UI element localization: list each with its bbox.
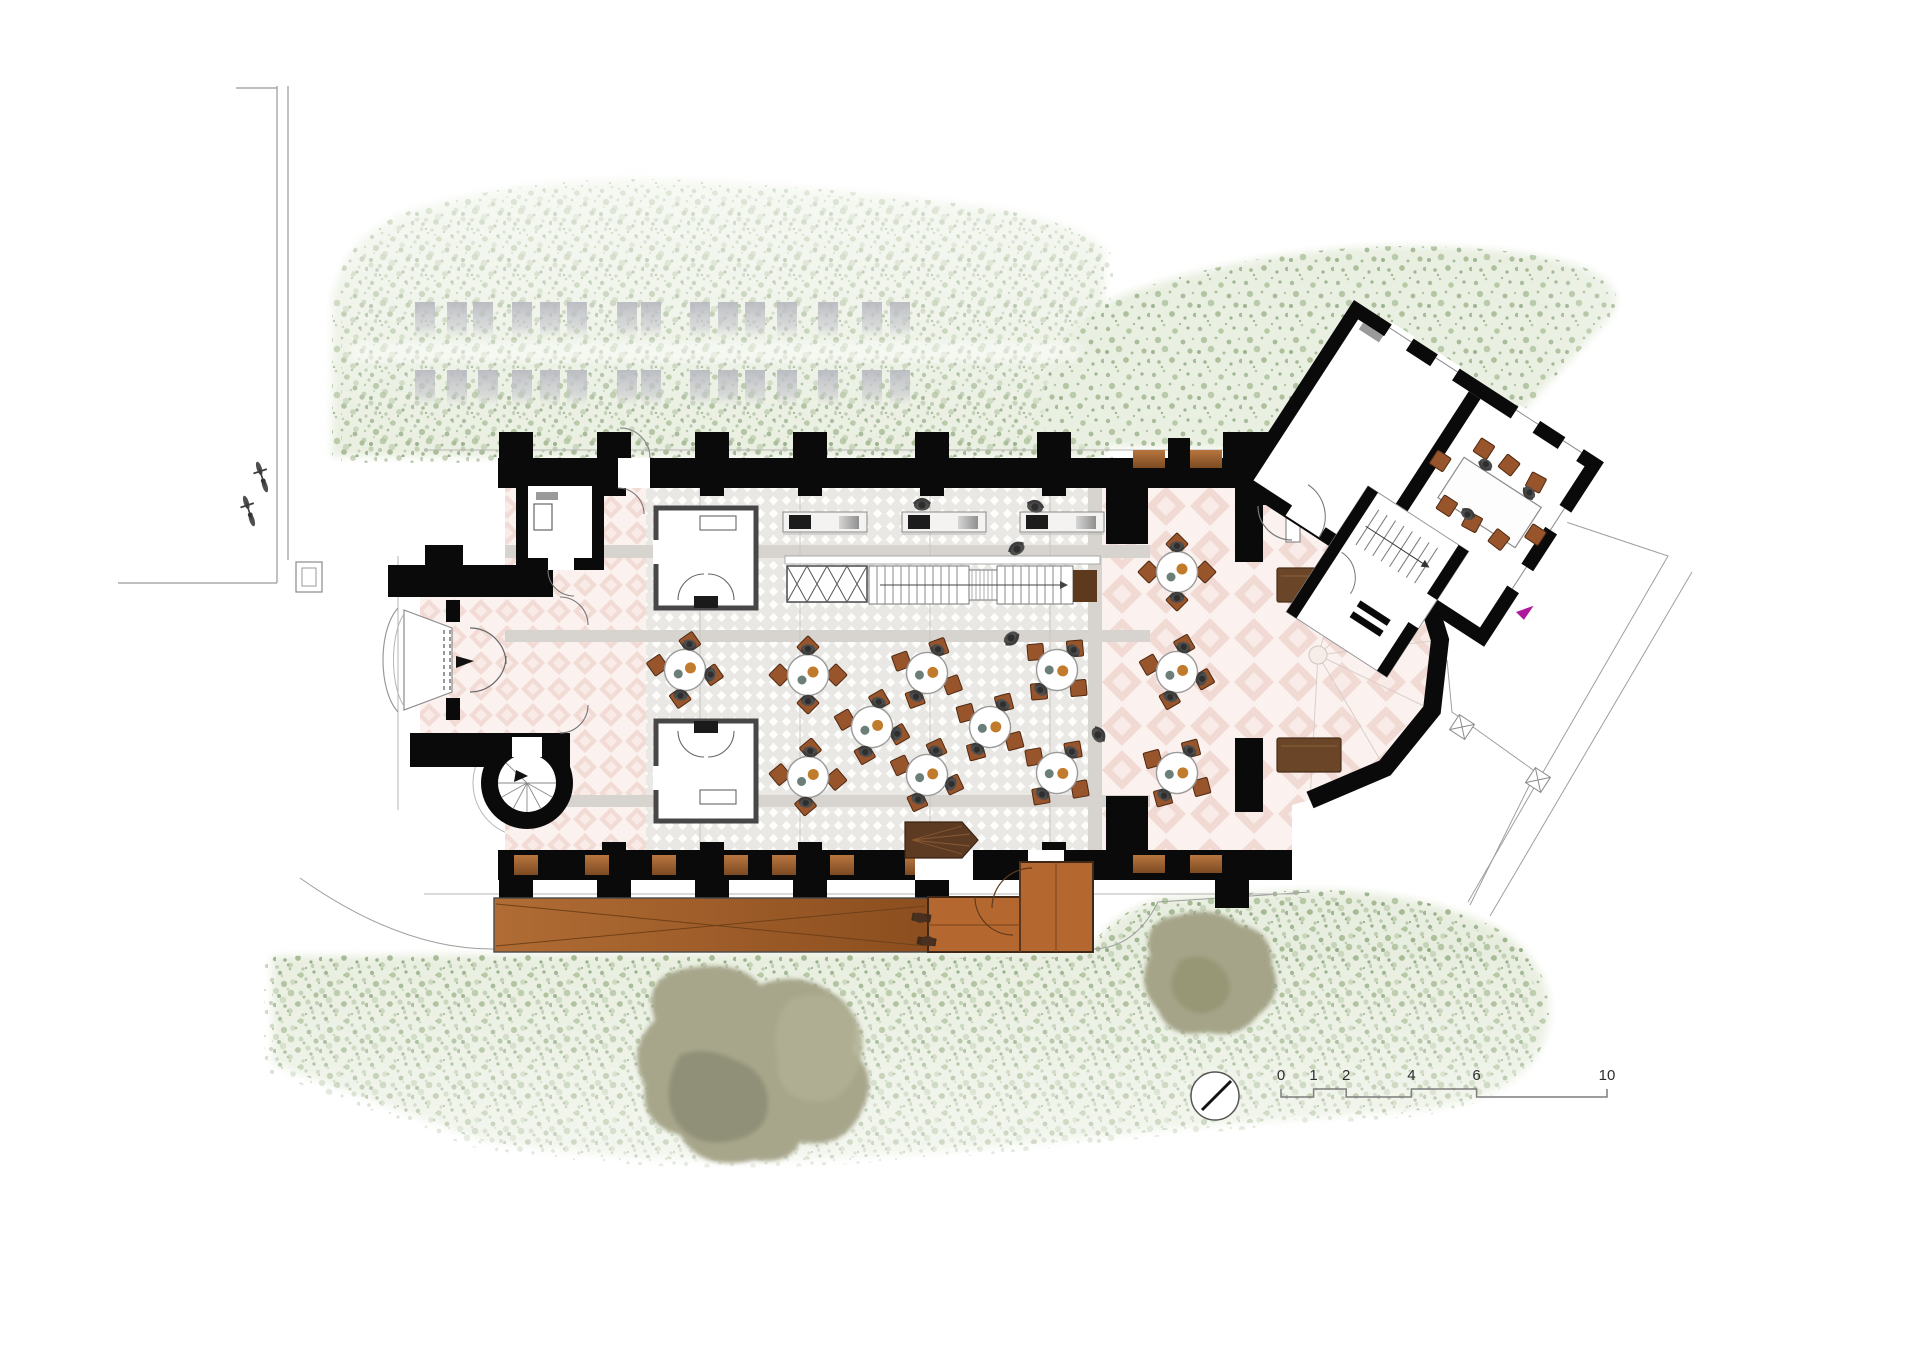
counter-bench xyxy=(783,512,867,534)
gravestone xyxy=(641,302,661,338)
scale-label-6: 6 xyxy=(1472,1067,1480,1084)
gravestone xyxy=(690,302,710,338)
gravestone xyxy=(478,370,498,406)
cubicle-pod-south xyxy=(653,721,756,821)
gravestone xyxy=(641,370,661,406)
seated-person xyxy=(801,644,815,654)
scale-label-0: 0 xyxy=(1277,1067,1285,1084)
north-counters xyxy=(783,512,1104,534)
gravestone xyxy=(512,302,532,338)
gravestone xyxy=(690,370,710,406)
gravestone xyxy=(862,302,882,338)
gravestone xyxy=(718,302,738,338)
graveyard-path xyxy=(350,342,1080,362)
timber-ramp xyxy=(494,898,928,952)
gravestone xyxy=(745,302,765,338)
counter-bench xyxy=(1020,512,1104,534)
scale-label-10: 10 xyxy=(1599,1067,1616,1084)
gravestone xyxy=(890,370,910,406)
gravestone xyxy=(777,302,797,338)
gravestone xyxy=(745,370,765,406)
gravestone xyxy=(415,370,435,406)
standing-person xyxy=(914,499,930,510)
utility-box xyxy=(296,562,322,592)
gravestone xyxy=(447,302,467,338)
gravestone xyxy=(718,370,738,406)
gravestone xyxy=(415,302,435,338)
gravestone xyxy=(818,302,838,338)
gravestone xyxy=(617,370,637,406)
gravestone xyxy=(862,370,882,406)
floor-plan-drawing: 0 1 2 4 6 10 xyxy=(0,0,1920,1358)
gravestone xyxy=(567,370,587,406)
scale-label-1: 1 xyxy=(1309,1067,1317,1084)
gravestone xyxy=(890,302,910,338)
gravestone xyxy=(617,302,637,338)
seated-person xyxy=(1170,541,1184,551)
wood-bench xyxy=(1277,738,1341,772)
gravestone xyxy=(447,370,467,406)
central-staircase xyxy=(785,556,1100,604)
cubicle-pod-north xyxy=(653,508,756,608)
gravestone xyxy=(777,370,797,406)
gravestone xyxy=(512,370,532,406)
gravestone xyxy=(473,302,493,338)
gravestone xyxy=(567,302,587,338)
spiral-stair-turret xyxy=(481,737,573,829)
chancel-buttress xyxy=(1168,438,1190,488)
gravestone xyxy=(540,302,560,338)
gravestone xyxy=(818,370,838,406)
floor-plan-canvas: 0 1 2 4 6 10 xyxy=(0,0,1920,1358)
gravestone xyxy=(540,370,560,406)
seated-person xyxy=(1170,593,1184,603)
scale-label-2: 2 xyxy=(1342,1067,1350,1084)
scale-label-4: 4 xyxy=(1407,1067,1415,1084)
south-door-furniture xyxy=(905,822,978,858)
counter-bench xyxy=(902,512,986,534)
seated-person xyxy=(801,696,815,706)
north-arrow xyxy=(1191,1072,1239,1120)
